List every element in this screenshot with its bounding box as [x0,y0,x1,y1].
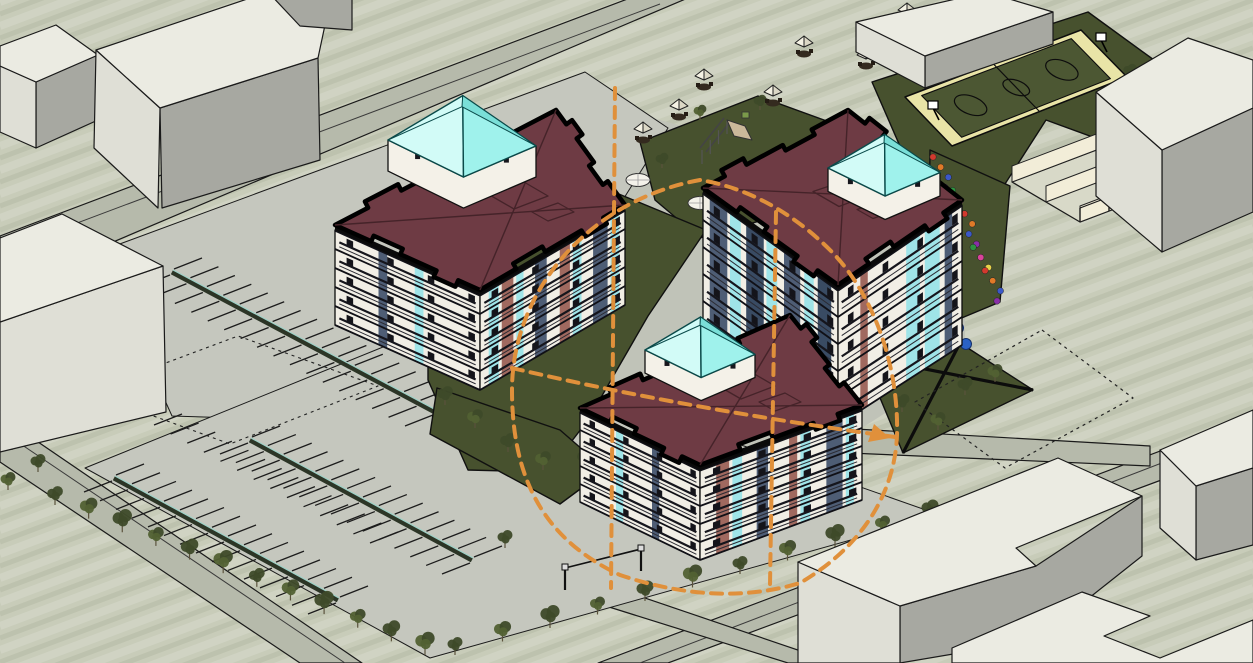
site-model-render [0,0,1253,663]
lawn-umbrella [626,174,650,187]
model-viewport[interactable] [0,0,1253,663]
